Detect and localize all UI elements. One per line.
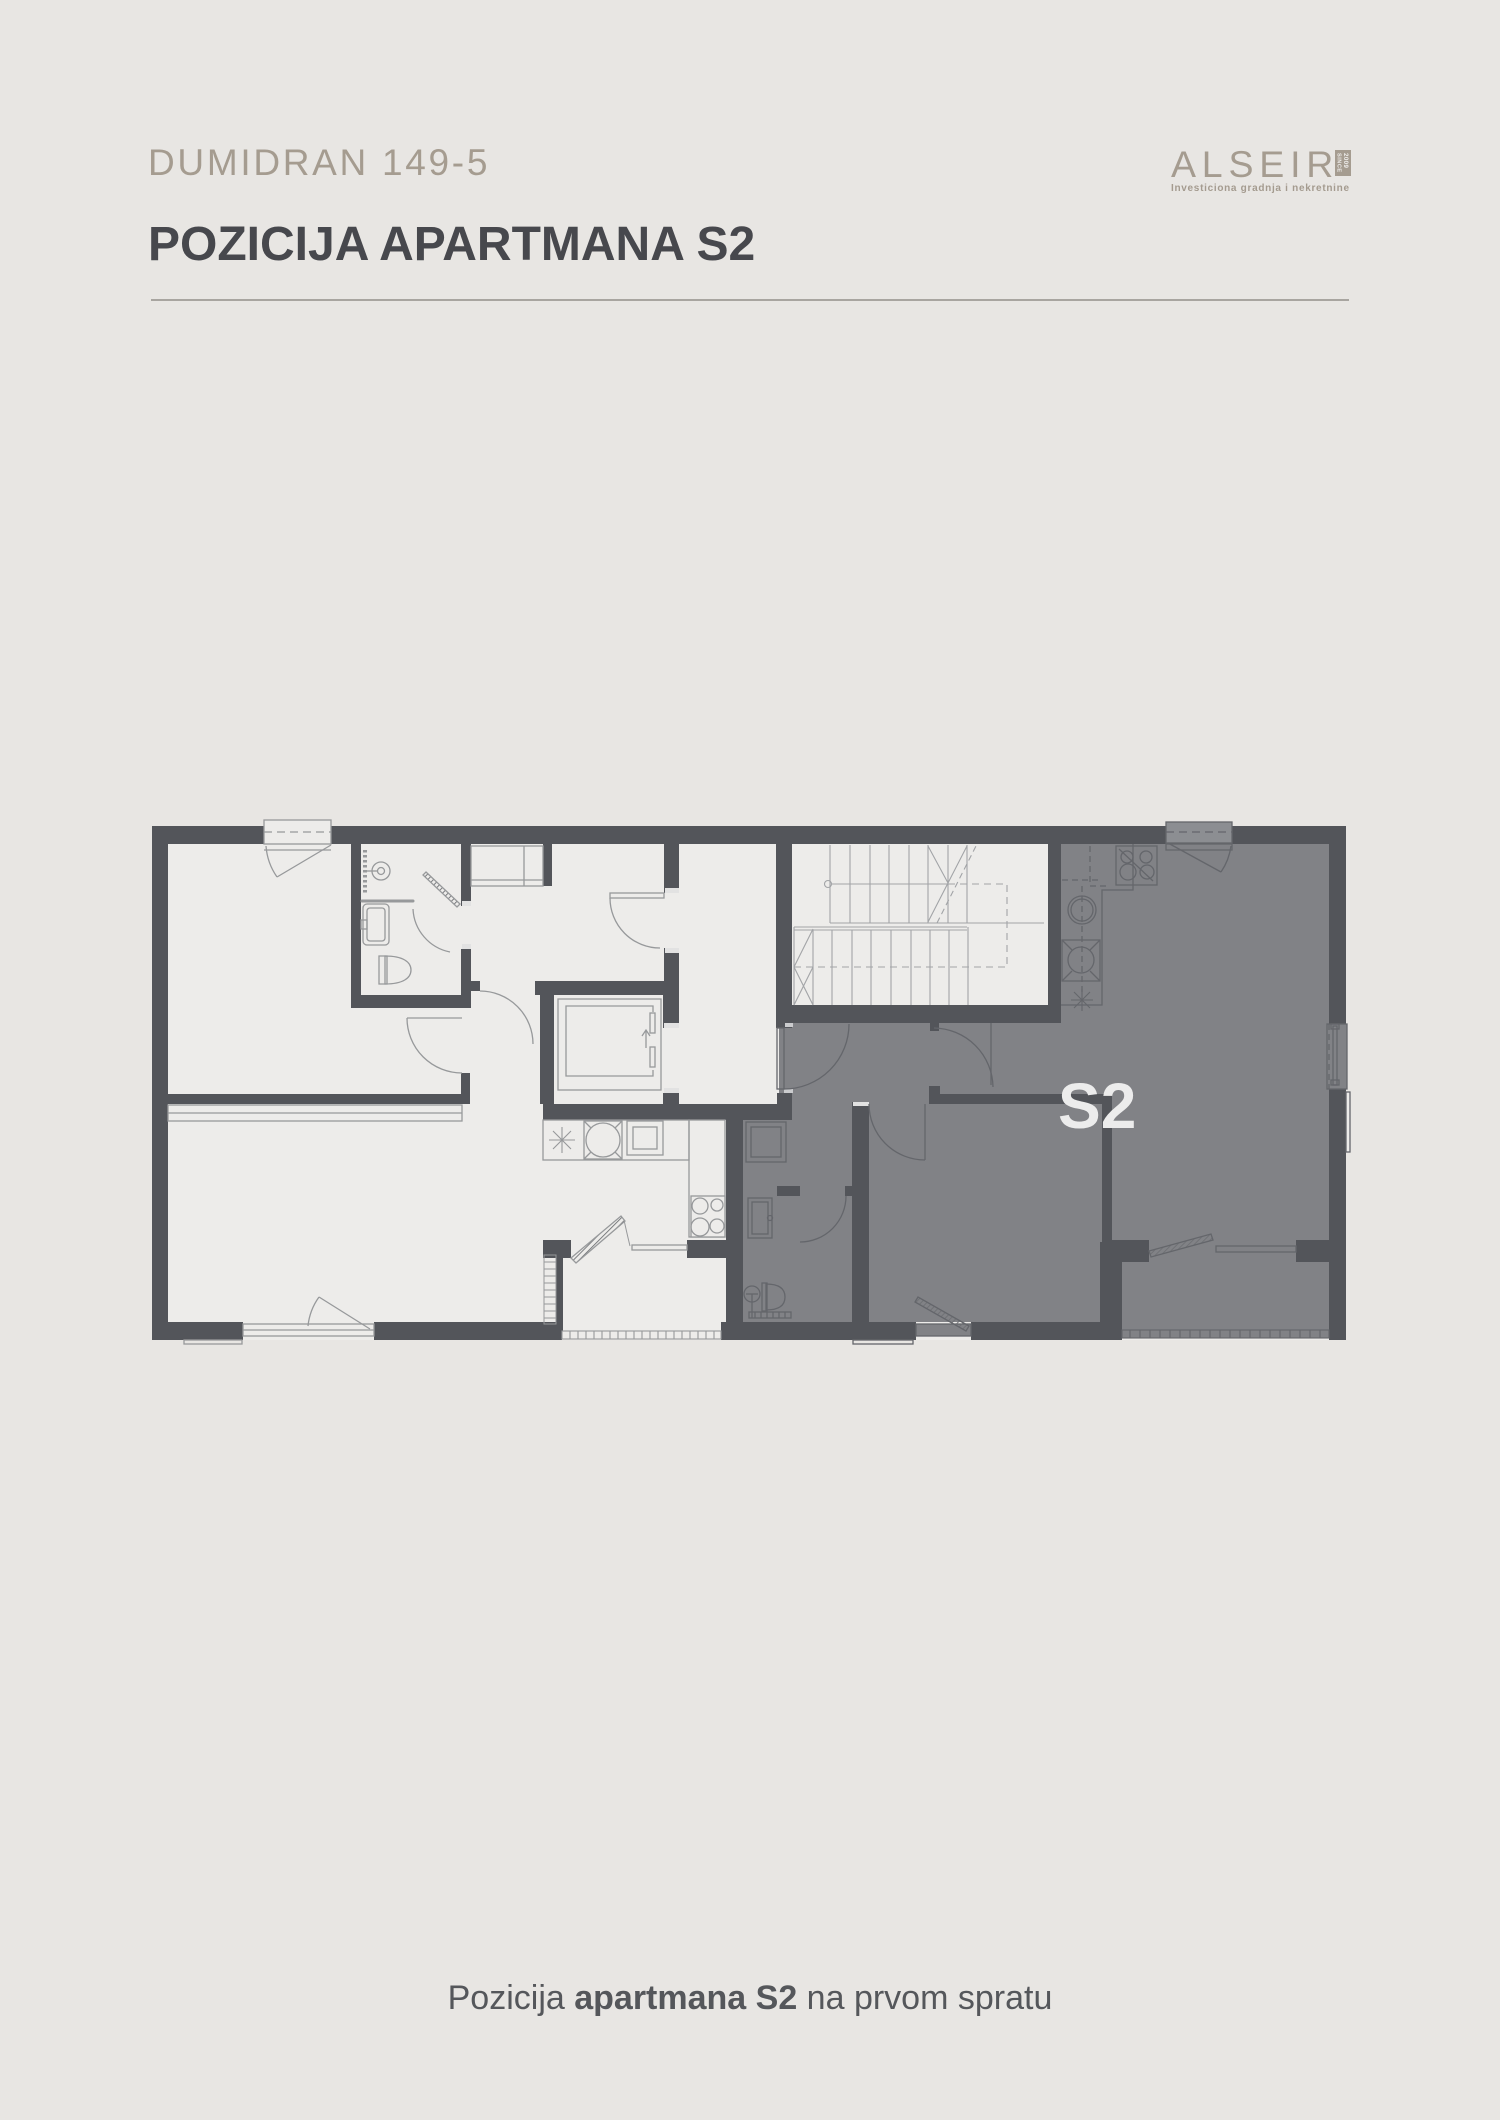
svg-text:S2: S2: [1058, 1070, 1136, 1142]
